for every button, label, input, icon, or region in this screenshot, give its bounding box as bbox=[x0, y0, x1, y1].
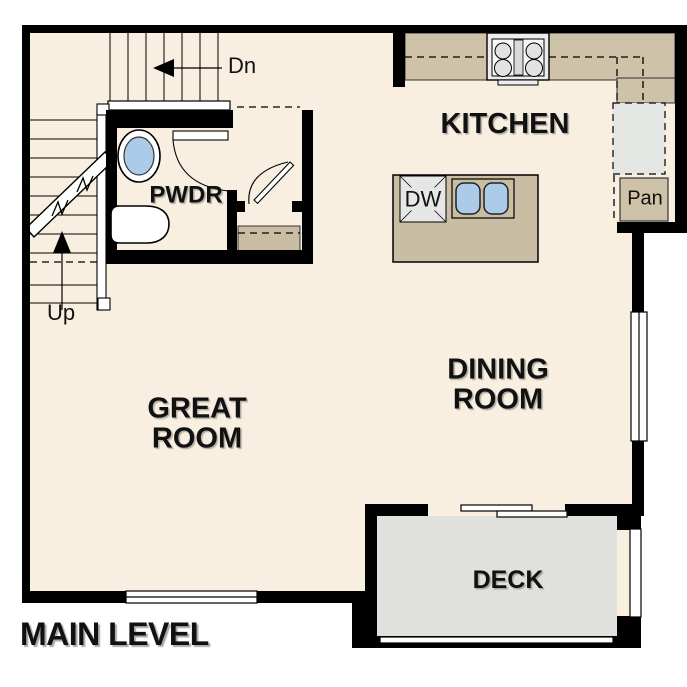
wall-left bbox=[22, 25, 30, 602]
deck-label: DECK bbox=[473, 567, 544, 593]
wall-powder-bottom bbox=[106, 250, 313, 264]
wall-right-outer bbox=[675, 25, 687, 233]
stove-icon bbox=[487, 33, 549, 85]
great-room-window bbox=[126, 591, 257, 603]
closet-shelf bbox=[238, 226, 300, 252]
wall-entry bbox=[302, 110, 313, 264]
wall-kitchen-stub bbox=[393, 25, 405, 87]
floor-plan: KITCHEN PWDR GREAT ROOM DINING ROOM DECK… bbox=[0, 0, 687, 687]
wall-deck-right-upper bbox=[617, 516, 641, 530]
plan-title: MAIN LEVEL bbox=[20, 618, 209, 652]
stairs-down-label: Dn bbox=[228, 54, 256, 77]
door-stub-left bbox=[237, 201, 245, 212]
stairs-up-label: Up bbox=[47, 301, 75, 324]
wall-deck-top-right bbox=[565, 504, 641, 516]
door-stub-right bbox=[292, 201, 302, 212]
wall-right-mid-upper bbox=[632, 233, 644, 312]
dining-room-window bbox=[631, 312, 647, 441]
toilet-icon bbox=[111, 206, 169, 243]
powder-sink-icon bbox=[118, 130, 160, 182]
refrigerator bbox=[613, 103, 665, 174]
wall-closet-divider bbox=[227, 190, 237, 252]
dishwasher-label: DW bbox=[403, 187, 444, 210]
powder-room-label: PWDR bbox=[149, 182, 222, 207]
floor-plan-drawing bbox=[0, 0, 687, 687]
great-room-label: GREAT ROOM bbox=[147, 394, 246, 455]
kitchen-sink-icon bbox=[452, 179, 514, 218]
wall-top bbox=[22, 25, 687, 33]
stair-landing-edge bbox=[108, 101, 230, 110]
wall-powder-top bbox=[106, 110, 233, 128]
kitchen-label: KITCHEN bbox=[441, 109, 570, 139]
deck-side-window bbox=[630, 529, 641, 617]
deck-railing bbox=[380, 637, 613, 643]
pantry-label: Pan bbox=[627, 189, 663, 210]
dining-room-label: DINING ROOM bbox=[447, 355, 549, 416]
wall-pantry-corner bbox=[617, 222, 687, 233]
